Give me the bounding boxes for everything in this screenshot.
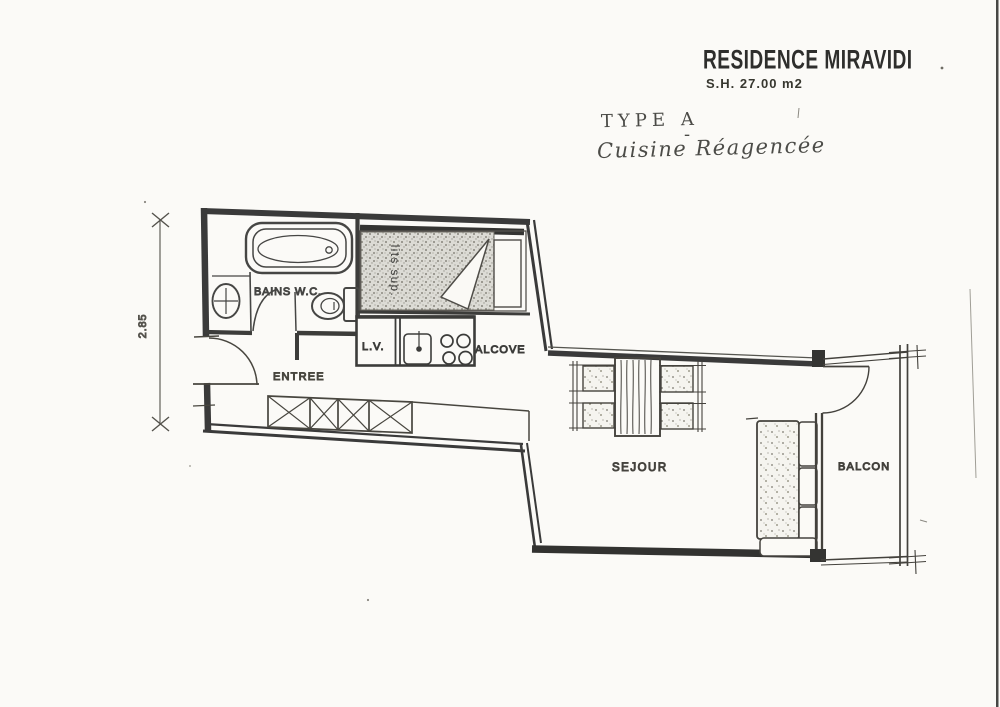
low-counter [412,402,529,441]
room-label-alcove: ALCOVE [475,344,526,356]
alcove-bed: lits sup. [356,231,530,314]
scan-speck [920,520,927,522]
room-label-balcon: BALCON [838,461,890,473]
bunk-beds [569,358,706,436]
room-label-lits-sup: lits sup. [388,245,400,298]
room-label-sejour: SEJOUR [612,462,668,474]
bathroom-bottom-wall-left [205,332,252,333]
bed-foot-line [356,312,530,314]
balcony: BALCON [810,344,926,574]
floor-plan-svg: BAINS W.C. lits sup. [0,0,1000,707]
dimension-left: 2.85 [137,213,169,431]
bunk-curtain-panel [615,358,660,436]
room-label-bains-wc: BAINS W.C. [254,286,322,298]
room-label-entree: ENTREE [273,371,325,383]
scan-speck [189,465,191,467]
entry-opening-tick [194,336,219,337]
kitchen: L.V. ALCOVE [357,317,526,366]
sejour: SEJOUR [569,358,817,556]
room-label-lv: L.V. [362,341,385,353]
bathtub [246,223,352,273]
sofa [746,418,817,556]
scan-speck [144,201,146,203]
scanned-floor-plan-page: RESIDENCE MIRAVIDI S.H. 27.00 m2 TYPE A … [0,0,1000,707]
scan-crease [970,289,976,478]
bed-pillow [494,240,521,307]
closet [268,396,412,433]
tub-side-edge [250,272,251,332]
page-edge-line [996,0,999,707]
balcony-door-arc [823,367,870,414]
scan-speck [941,67,944,70]
entry-door-arc [209,338,257,385]
bathroom: BAINS W.C. [205,213,366,360]
balcony-railing [900,344,908,566]
washbasin [213,284,240,318]
scan-speck [367,599,369,601]
dimension-value: 2.85 [137,314,149,339]
scan-speck [798,108,799,118]
tub-drain [326,247,332,253]
wall-tick [193,405,215,406]
